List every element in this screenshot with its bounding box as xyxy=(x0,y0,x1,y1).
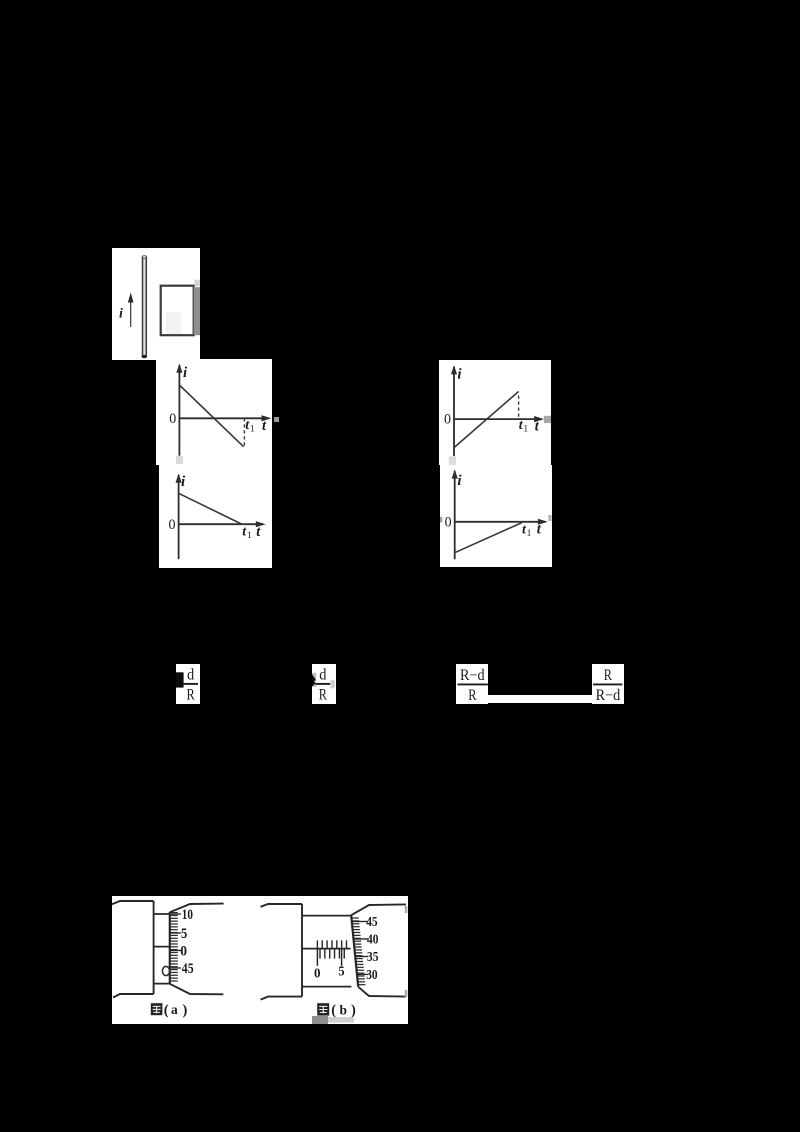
svg-text:R: R xyxy=(187,687,196,704)
svg-text:(: ( xyxy=(164,1002,169,1018)
svg-text:): ) xyxy=(183,1002,188,1018)
svg-text:R−d: R−d xyxy=(596,687,621,704)
svg-text:t: t xyxy=(535,419,540,435)
svg-text:R−d: R−d xyxy=(460,667,485,684)
svg-text:R: R xyxy=(468,687,477,704)
svg-text:1: 1 xyxy=(527,529,532,539)
svg-text:d: d xyxy=(187,667,194,684)
svg-text:i: i xyxy=(119,307,123,322)
svg-text:t: t xyxy=(262,418,267,434)
svg-text:R: R xyxy=(604,667,613,684)
svg-text:t: t xyxy=(256,523,261,539)
svg-text:45: 45 xyxy=(182,961,194,977)
svg-text:0: 0 xyxy=(444,412,451,428)
svg-text:0: 0 xyxy=(445,514,452,530)
svg-text:30: 30 xyxy=(366,968,377,983)
svg-text:0: 0 xyxy=(180,943,187,959)
svg-text:5: 5 xyxy=(338,965,344,980)
svg-text:i: i xyxy=(457,366,462,382)
svg-text:5: 5 xyxy=(181,926,187,942)
svg-text:i: i xyxy=(183,365,188,381)
svg-text:): ) xyxy=(351,1003,356,1019)
svg-text:1: 1 xyxy=(250,425,255,435)
svg-text:1: 1 xyxy=(247,531,252,541)
svg-text:(: ( xyxy=(331,1003,336,1019)
svg-text:0: 0 xyxy=(170,411,177,427)
svg-text:1: 1 xyxy=(523,425,528,435)
svg-text:i: i xyxy=(181,473,186,489)
svg-text:R: R xyxy=(319,687,328,704)
svg-text:40: 40 xyxy=(367,933,378,948)
svg-text:35: 35 xyxy=(367,950,378,965)
svg-text:0: 0 xyxy=(169,516,176,532)
svg-text:i: i xyxy=(457,472,462,488)
svg-text:45: 45 xyxy=(366,915,377,930)
svg-text:b: b xyxy=(340,1002,348,1017)
svg-text:a: a xyxy=(171,1002,178,1017)
svg-text:0: 0 xyxy=(314,967,321,982)
svg-text:10: 10 xyxy=(182,907,193,923)
svg-text:d: d xyxy=(319,667,326,684)
